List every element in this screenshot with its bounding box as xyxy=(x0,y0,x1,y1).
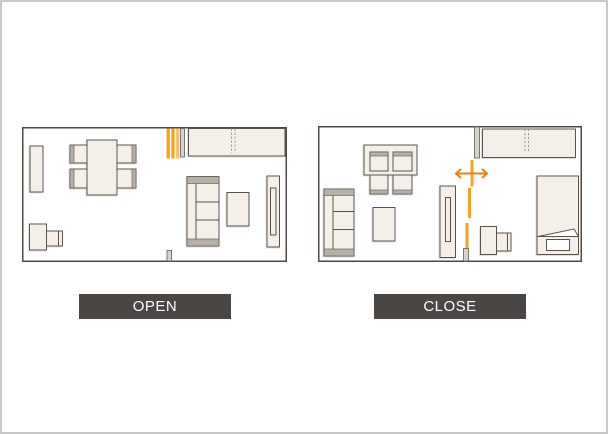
wall-stub-icon xyxy=(475,127,480,158)
floor-plan-comparison-diagram: OPEN CLOSE xyxy=(0,0,608,434)
pillow-icon xyxy=(547,240,570,251)
coffee-table-icon xyxy=(227,193,249,227)
dining-table-icon xyxy=(87,140,117,195)
desk-chair-icon xyxy=(497,233,512,251)
floor-plan-close xyxy=(318,126,582,262)
tv-board-icon xyxy=(267,176,280,247)
door-stub-icon xyxy=(167,251,172,262)
closet-icon xyxy=(189,129,286,157)
dining-set-icon xyxy=(364,145,417,194)
tv-board-icon xyxy=(440,186,456,258)
desk-chair-icon xyxy=(47,231,63,246)
dining-set-icon xyxy=(70,140,136,195)
desk-icon xyxy=(30,224,63,250)
door-stub-icon xyxy=(464,249,469,262)
bed-icon xyxy=(537,176,579,255)
wall-stub-icon xyxy=(181,129,185,158)
open-state-button[interactable]: OPEN xyxy=(79,294,231,319)
closet-icon xyxy=(483,129,576,158)
close-state-button[interactable]: CLOSE xyxy=(374,294,526,319)
coffee-table-icon xyxy=(373,208,395,242)
floor-plan-open xyxy=(22,127,287,262)
shelf-icon xyxy=(30,146,43,192)
partition-panels-stacked-icon xyxy=(167,129,180,159)
sofa-icon xyxy=(187,177,219,247)
sofa-icon xyxy=(324,189,354,256)
desk-icon xyxy=(481,227,512,255)
